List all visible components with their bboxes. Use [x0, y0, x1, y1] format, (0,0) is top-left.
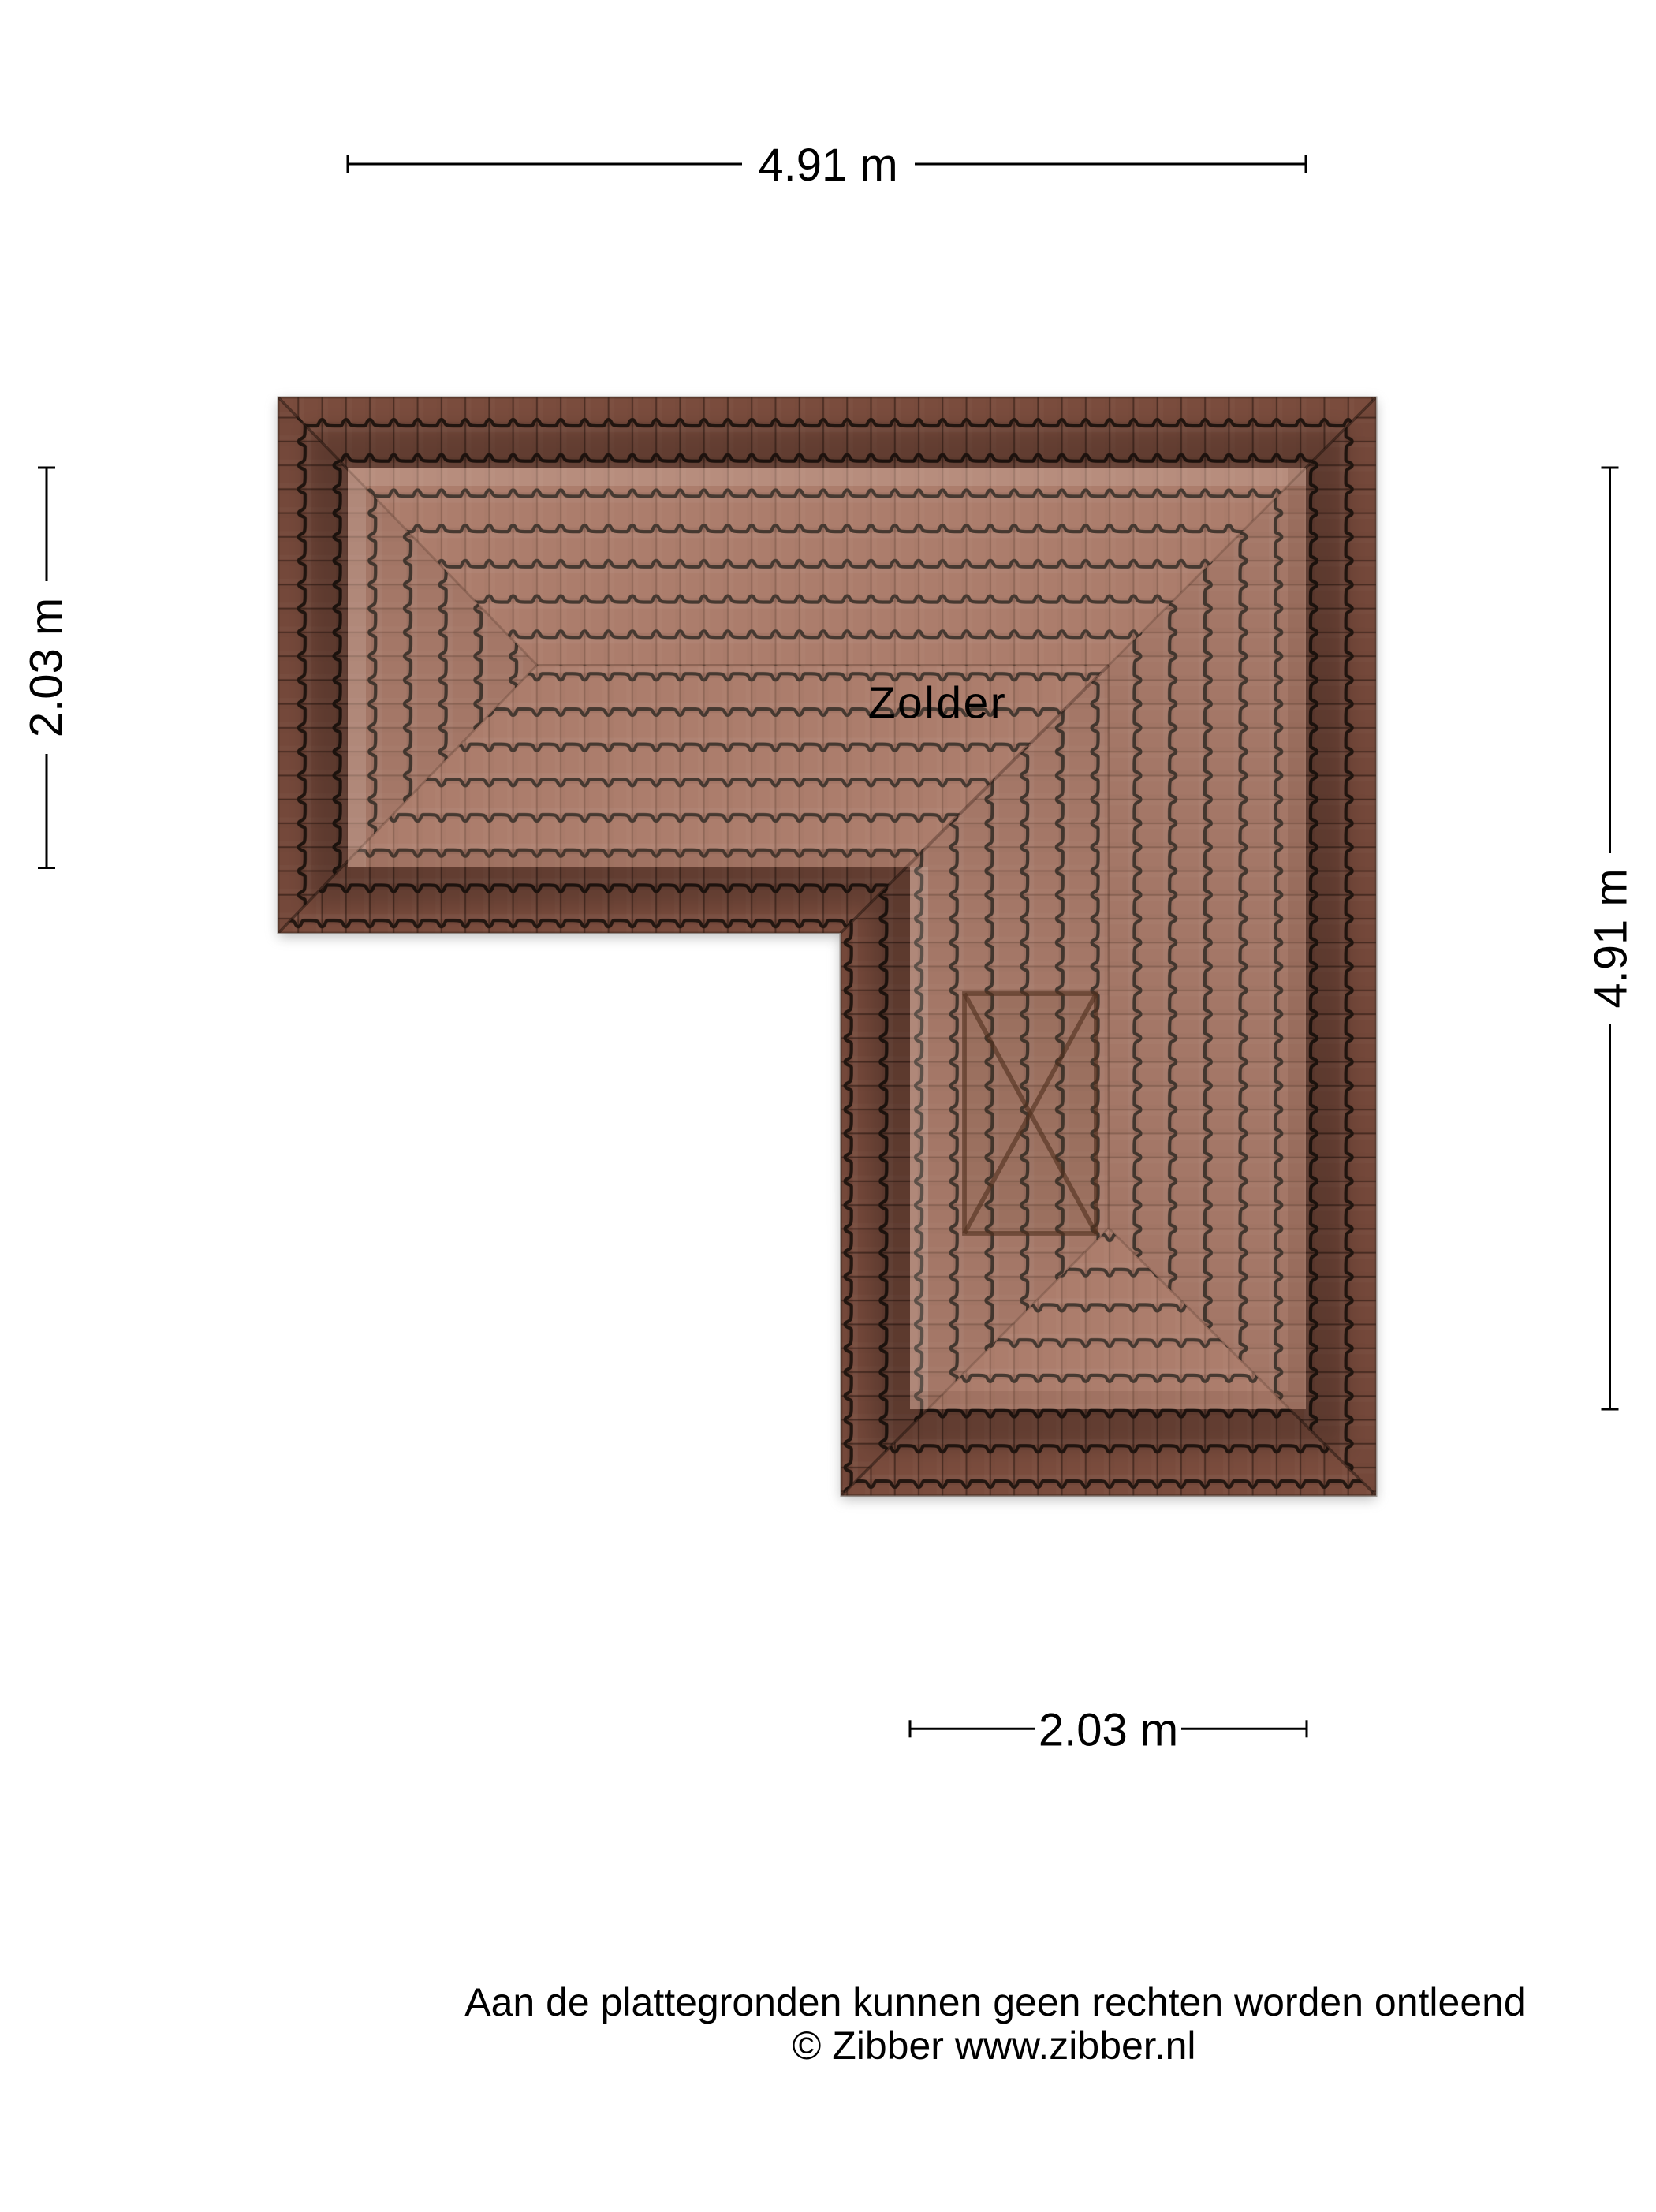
svg-text:2.03 m: 2.03 m — [21, 598, 72, 737]
svg-text:Zolder: Zolder — [868, 678, 1008, 729]
svg-text:4.91 m: 4.91 m — [1585, 868, 1636, 1008]
svg-text:2.03 m: 2.03 m — [1039, 1704, 1178, 1755]
svg-text:© Zibber www.zibber.nl: © Zibber www.zibber.nl — [792, 2024, 1195, 2068]
svg-text:Aan de plattegronden kunnen ge: Aan de plattegronden kunnen geen rechten… — [464, 1980, 1526, 2024]
svg-text:4.91 m: 4.91 m — [758, 140, 897, 191]
